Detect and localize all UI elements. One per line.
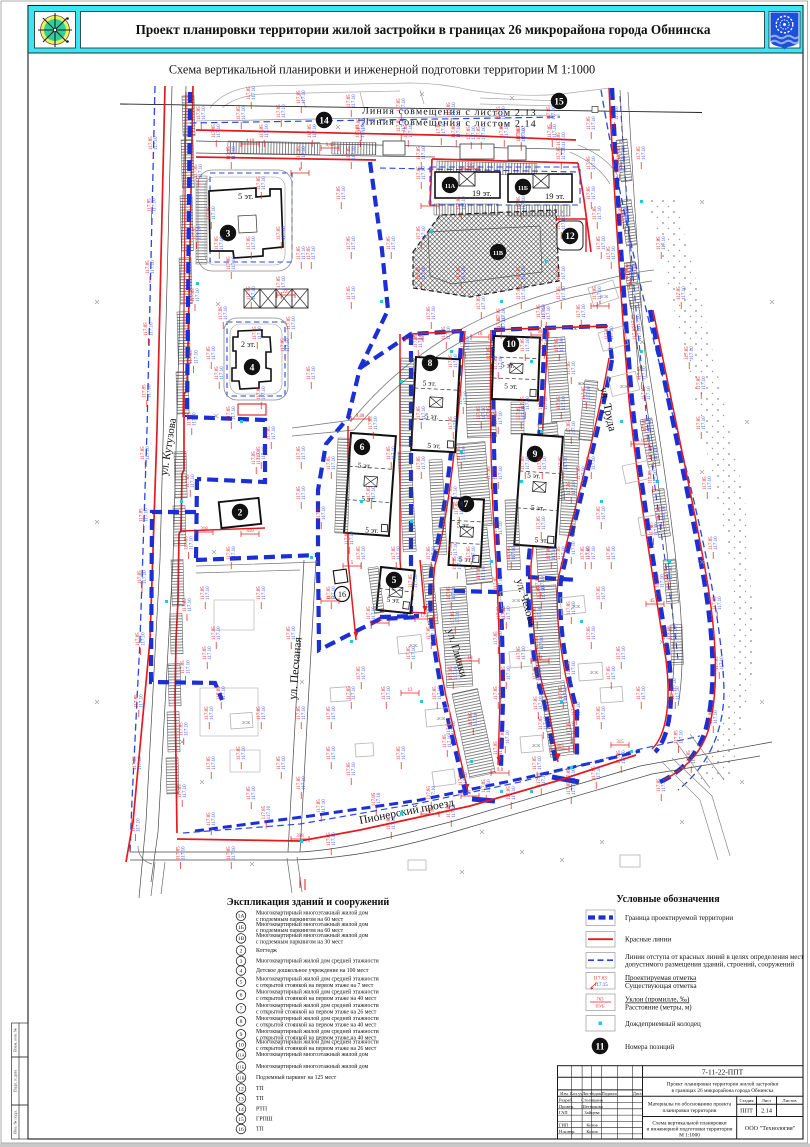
svg-text:117.10: 117.10 — [622, 646, 627, 660]
svg-text:117.10: 117.10 — [137, 818, 142, 832]
svg-text:Многоквартирный жилой дом сре: Многоквартирный жилой дом средней этажно… — [256, 989, 379, 996]
svg-text:117.10: 117.10 — [654, 470, 659, 484]
svg-text:117.10: 117.10 — [252, 286, 257, 300]
svg-text:5 эт.: 5 эт. — [427, 441, 441, 451]
svg-text:11А: 11А — [237, 1052, 245, 1057]
svg-text:117.10: 117.10 — [592, 626, 597, 640]
svg-text:117.10: 117.10 — [482, 406, 487, 420]
svg-text:117.10: 117.10 — [669, 566, 674, 580]
svg-text:117.10: 117.10 — [212, 812, 217, 826]
svg-text:117.10: 117.10 — [482, 566, 487, 580]
svg-text:117.10: 117.10 — [154, 136, 159, 150]
svg-text:5 эт.: 5 эт. — [422, 378, 436, 388]
svg-text:117.10: 117.10 — [422, 146, 427, 160]
svg-text:117.10: 117.10 — [592, 456, 597, 470]
svg-text:117.10: 117.10 — [592, 546, 597, 560]
svg-text:117.10: 117.10 — [643, 366, 648, 380]
svg-text:117.10: 117.10 — [702, 416, 707, 430]
svg-text:и инженерной подготовки террит: и инженерной подготовки территории — [646, 1126, 732, 1133]
svg-text:117.10: 117.10 — [149, 322, 154, 336]
svg-text:117.10: 117.10 — [615, 106, 620, 120]
svg-text:117.10: 117.10 — [182, 846, 187, 860]
svg-text:117.10: 117.10 — [302, 776, 307, 790]
svg-text:117.10: 117.10 — [507, 666, 512, 680]
svg-text:ООО "Технология": ООО "Технология" — [745, 1125, 796, 1132]
svg-text:117.10: 117.10 — [374, 416, 379, 430]
svg-text:117.63: 117.63 — [593, 977, 607, 982]
svg-text:117.10: 117.10 — [312, 246, 317, 260]
svg-text:11В: 11В — [237, 1075, 244, 1080]
svg-text:117.10: 117.10 — [460, 501, 465, 515]
svg-text:117.10: 117.10 — [392, 236, 397, 250]
svg-text:117.10: 117.10 — [674, 626, 679, 640]
svg-text:Детское дошкольное учреждение: Детское дошкольное учреждение на 100 мес… — [256, 968, 369, 974]
svg-text:117.10: 117.10 — [572, 601, 577, 615]
svg-text:Котов: Котов — [586, 1123, 597, 1128]
svg-text:117.10: 117.10 — [442, 122, 447, 136]
svg-text:117.10: 117.10 — [145, 508, 150, 522]
svg-text:117.10: 117.10 — [562, 266, 567, 280]
svg-text:ТП: ТП — [256, 1096, 265, 1102]
svg-text:5 эт.: 5 эт. — [365, 525, 379, 535]
svg-text:117.10: 117.10 — [220, 366, 225, 380]
svg-text:98: 98 — [538, 330, 543, 335]
svg-text:117.10: 117.10 — [312, 366, 317, 380]
svg-text:117.10: 117.10 — [352, 94, 357, 108]
svg-text:15: 15 — [554, 98, 564, 108]
svg-text:117.10: 117.10 — [542, 586, 547, 600]
svg-text:117.10: 117.10 — [232, 846, 237, 860]
svg-text:117.10: 117.10 — [499, 356, 504, 370]
svg-text:6: 6 — [360, 443, 365, 453]
svg-text:Многоквартирный жилой дом сре: Многоквартирный жилой дом средней этажно… — [256, 1002, 379, 1009]
svg-text:13: 13 — [408, 688, 413, 693]
svg-text:117.10: 117.10 — [242, 746, 247, 760]
svg-text:Многоквартирный жилой дом сре: Многоквартирный жилой дом средней этажно… — [256, 1015, 379, 1022]
svg-text:2: 2 — [240, 948, 243, 954]
svg-text:117.10: 117.10 — [622, 146, 627, 160]
svg-text:117.10: 117.10 — [332, 832, 337, 846]
svg-text:117.10: 117.10 — [252, 786, 257, 800]
svg-text:2СК: 2СК — [512, 598, 521, 603]
svg-text:117.10: 117.10 — [492, 466, 497, 480]
svg-text:117.10: 117.10 — [718, 596, 723, 610]
svg-text:117.10: 117.10 — [199, 164, 204, 178]
svg-text:117.10: 117.10 — [545, 336, 550, 350]
svg-text:ТП: ТП — [256, 1127, 265, 1133]
svg-text:Граница проектируемой территор: Граница проектируемой территории — [625, 914, 733, 922]
svg-text:765: 765 — [597, 997, 605, 1002]
svg-text:117.10: 117.10 — [422, 456, 427, 470]
svg-text:10: 10 — [506, 340, 516, 350]
svg-text:3: 3 — [240, 959, 243, 965]
svg-text:с открытой стоянкой на первом: с открытой стоянкой на первом этаже на 4… — [256, 1021, 377, 1028]
svg-text:45,10: 45,10 — [650, 599, 661, 604]
svg-text:117.10: 117.10 — [708, 476, 713, 490]
svg-text:117.10: 117.10 — [322, 799, 327, 813]
svg-text:ГАП: ГАП — [559, 1110, 568, 1115]
svg-text:117.10: 117.10 — [262, 446, 267, 460]
svg-text:2 эт.: 2 эт. — [241, 340, 255, 349]
svg-text:117.10: 117.10 — [282, 226, 287, 240]
svg-text:117.10: 117.10 — [582, 304, 587, 318]
svg-text:Столицына: Столицына — [581, 1098, 603, 1103]
svg-text:117.10: 117.10 — [267, 805, 272, 819]
svg-text:117.10: 117.10 — [196, 288, 201, 302]
svg-text:Дата: Дата — [633, 1091, 642, 1096]
svg-text:13: 13 — [378, 618, 383, 623]
svg-text:117.10: 117.10 — [572, 781, 577, 795]
svg-text:№док.: №док. — [591, 1091, 603, 1096]
svg-text:117.10: 117.10 — [392, 446, 397, 460]
svg-text:117.10: 117.10 — [547, 306, 552, 320]
svg-text:11А: 11А — [445, 183, 456, 190]
svg-text:117.10: 117.10 — [552, 106, 557, 120]
svg-text:117.10: 117.10 — [140, 694, 145, 708]
svg-text:117.10: 117.10 — [572, 481, 577, 495]
svg-text:117.10: 117.10 — [538, 756, 543, 770]
svg-text:117.10: 117.10 — [387, 686, 392, 700]
svg-text:с открытой стоянкой на первом: с открытой стоянкой на первом этаже на 4… — [256, 995, 377, 1002]
svg-text:117.10: 117.10 — [242, 106, 247, 120]
svg-text:117.10: 117.10 — [352, 146, 357, 160]
svg-text:Шетникова: Шетникова — [581, 1104, 603, 1109]
svg-text:117.10: 117.10 — [499, 686, 504, 700]
svg-text:117.10: 117.10 — [352, 236, 357, 250]
svg-text:117.10: 117.10 — [562, 216, 567, 230]
svg-text:117.10: 117.10 — [191, 474, 196, 488]
svg-text:ППТ: ППТ — [740, 1108, 753, 1115]
svg-text:117.10: 117.10 — [422, 266, 427, 280]
svg-text:117.10: 117.10 — [402, 118, 407, 132]
svg-text:2СК: 2СК — [620, 384, 629, 389]
svg-text:117.10: 117.10 — [153, 198, 158, 212]
svg-text:Коттедж: Коттедж — [256, 948, 278, 954]
svg-text:117.10: 117.10 — [602, 586, 607, 600]
svg-text:117.10: 117.10 — [654, 522, 659, 536]
svg-text:117.10: 117.10 — [322, 506, 327, 520]
svg-text:Стадия: Стадия — [739, 1098, 754, 1103]
svg-text:9: 9 — [533, 450, 538, 460]
svg-text:117.10: 117.10 — [522, 128, 527, 142]
svg-text:Подпись: Подпись — [602, 1091, 618, 1096]
svg-text:ул. Песчаная: ул. Песчаная — [287, 636, 304, 700]
svg-text:117.10: 117.10 — [612, 546, 617, 560]
svg-text:117.10: 117.10 — [352, 686, 357, 700]
svg-text:Многоквартирный многоэтажный ж: Многоквартирный многоэтажный жилой дом — [256, 1051, 369, 1058]
svg-text:117.10: 117.10 — [679, 730, 684, 744]
svg-text:Условные обозначения: Условные обозначения — [616, 894, 720, 905]
svg-text:9,40: 9,40 — [326, 143, 335, 148]
svg-text:117.10: 117.10 — [422, 166, 427, 180]
svg-text:с подземным паркингом на 30 ме: с подземным паркингом на 30 мест — [256, 939, 344, 945]
svg-text:117.10: 117.10 — [412, 646, 417, 660]
svg-text:с открытой стоянкой на первом: с открытой стоянкой на первом этаже на 7… — [256, 982, 374, 989]
svg-text:117.10: 117.10 — [482, 296, 487, 310]
svg-text:7-11-22-ППТ: 7-11-22-ППТ — [702, 1068, 744, 1077]
svg-text:117.10: 117.10 — [562, 396, 567, 410]
svg-text:117.10: 117.10 — [720, 656, 725, 670]
svg-text:117.10: 117.10 — [222, 686, 227, 700]
svg-text:117.10: 117.10 — [542, 516, 547, 530]
svg-text:Подземный паркинг на 125 мест: Подземный паркинг на 125 мест — [256, 1074, 337, 1081]
svg-text:117.10: 117.10 — [262, 706, 267, 720]
svg-text:117.10: 117.10 — [506, 730, 511, 744]
svg-text:117.10: 117.10 — [302, 90, 307, 104]
svg-text:Проект планировки территории ж: Проект планировки территории жилой застр… — [136, 22, 711, 37]
svg-text:117.10: 117.10 — [692, 750, 697, 764]
svg-text:6: 6 — [240, 993, 243, 999]
svg-text:117.10: 117.10 — [224, 306, 229, 320]
svg-text:117.10: 117.10 — [602, 506, 607, 520]
svg-text:117.10: 117.10 — [282, 104, 287, 118]
svg-text:с открытой стоянкой на первом: с открытой стоянкой на первом этаже на 2… — [256, 1045, 377, 1052]
svg-text:2СК: 2СК — [532, 743, 541, 748]
svg-text:117.10: 117.10 — [414, 574, 419, 588]
svg-text:Взам. инв. №: Взам. инв. № — [13, 1028, 18, 1052]
svg-text:117.10: 117.10 — [540, 636, 545, 650]
svg-text:117.10: 117.10 — [512, 786, 517, 800]
svg-text:11Б: 11Б — [238, 1064, 245, 1069]
svg-text:117.10: 117.10 — [438, 686, 443, 700]
svg-text:117.10: 117.10 — [190, 536, 195, 550]
svg-text:2СК: 2СК — [242, 720, 251, 725]
svg-text:117.10: 117.10 — [262, 386, 267, 400]
svg-text:117.10: 117.10 — [690, 346, 695, 360]
svg-text:117.10: 117.10 — [572, 361, 577, 375]
svg-text:11: 11 — [596, 1043, 605, 1053]
svg-text:5 эт.: 5 эт. — [357, 461, 371, 471]
svg-text:117.10: 117.10 — [538, 606, 543, 620]
svg-text:117.10: 117.10 — [454, 486, 459, 500]
svg-text:117.10: 117.10 — [282, 756, 287, 770]
svg-text:117.10: 117.10 — [564, 686, 569, 700]
svg-text:117.10: 117.10 — [313, 124, 318, 138]
svg-text:117.10: 117.10 — [562, 286, 567, 300]
svg-text:5: 5 — [469, 791, 472, 796]
svg-text:Многоквартирный многоэтажный ж: Многоквартирный многоэтажный жилой дом — [256, 1063, 369, 1070]
svg-text:117.10: 117.10 — [502, 106, 507, 120]
svg-text:117.10: 117.10 — [272, 426, 277, 440]
svg-text:Многоквартирный многоэтажный ж: Многоквартирный многоэтажный жилой дом — [256, 910, 369, 917]
svg-text:11В: 11В — [493, 250, 503, 257]
svg-text:Красные линии: Красные линии — [625, 936, 671, 944]
svg-text:36,10: 36,10 — [635, 439, 646, 444]
svg-text:117.10: 117.10 — [188, 598, 193, 612]
svg-text:ГИП: ГИП — [559, 1123, 569, 1128]
svg-text:с открытой стоянкой на первом: с открытой стоянкой на первом этаже на 2… — [256, 1008, 377, 1015]
svg-text:8: 8 — [428, 359, 433, 369]
svg-text:Н.контр.: Н.контр. — [559, 1129, 575, 1134]
svg-text:117.10: 117.10 — [647, 386, 652, 400]
svg-text:117.10: 117.10 — [676, 686, 681, 700]
svg-text:Существующая отметка: Существующая отметка — [625, 982, 697, 990]
svg-text:8: 8 — [240, 1019, 243, 1025]
svg-text:117.10: 117.10 — [232, 546, 237, 560]
svg-text:3: 3 — [226, 230, 231, 240]
svg-text:117.10: 117.10 — [512, 546, 517, 560]
svg-text:Линия совмещения с листом 2.14: Линия совмещения с листом 2.14 — [362, 117, 537, 130]
svg-text:16: 16 — [238, 1127, 244, 1133]
svg-text:117.10: 117.10 — [505, 124, 510, 138]
svg-text:117.10: 117.10 — [198, 226, 203, 240]
svg-text:117.10: 117.10 — [193, 412, 198, 426]
svg-text:117.15: 117.15 — [594, 983, 608, 988]
svg-text:9: 9 — [240, 1032, 243, 1038]
svg-text:в границах 26 микрорайона горо: в границах 26 микрорайона города Обнинск… — [672, 1087, 775, 1094]
svg-text:Экспликация зданий и сооружени: Экспликация зданий и сооружений — [227, 897, 390, 908]
svg-text:978: 978 — [426, 809, 434, 814]
svg-text:117.10: 117.10 — [562, 132, 567, 146]
svg-text:117.10: 117.10 — [464, 391, 469, 405]
svg-text:Зайцева: Зайцева — [584, 1110, 599, 1115]
svg-text:117.10: 117.10 — [372, 606, 377, 620]
svg-text:117.10: 117.10 — [464, 772, 469, 786]
svg-text:117.10: 117.10 — [342, 186, 347, 200]
svg-text:4,10: 4,10 — [246, 139, 255, 144]
svg-text:117.10: 117.10 — [572, 421, 577, 435]
svg-text:318: 318 — [296, 834, 304, 839]
svg-text:117.10: 117.10 — [432, 306, 437, 320]
svg-text:117.10: 117.10 — [252, 236, 257, 250]
svg-text:117.10: 117.10 — [302, 446, 307, 460]
svg-text:117.10: 117.10 — [526, 338, 531, 352]
svg-text:315: 315 — [556, 744, 564, 749]
svg-text:117.10: 117.10 — [362, 546, 367, 560]
svg-text:117.10: 117.10 — [572, 768, 577, 782]
svg-text:117.10: 117.10 — [392, 816, 397, 830]
svg-text:117.10: 117.10 — [543, 456, 548, 470]
svg-text:Многоквартирный многоэтажный ж: Многоквартирный многоэтажный жилой дом — [256, 932, 369, 939]
svg-text:19 эт.: 19 эт. — [472, 188, 491, 198]
svg-text:117.10: 117.10 — [422, 406, 427, 420]
svg-text:117.10: 117.10 — [492, 406, 497, 420]
svg-text:117.10: 117.10 — [432, 786, 437, 800]
svg-text:117.10: 117.10 — [662, 778, 667, 792]
svg-text:117.10: 117.10 — [217, 124, 222, 138]
svg-text:2СК: 2СК — [590, 670, 599, 675]
svg-text:117.10: 117.10 — [539, 696, 544, 710]
svg-text:Многоквартирный жилой дом сре: Многоквартирный жилой дом средней этажно… — [256, 1028, 379, 1035]
svg-text:9,40: 9,40 — [356, 414, 365, 419]
svg-text:1В: 1В — [238, 936, 245, 942]
svg-text:Материалы по обоснованию проек: Материалы по обоснованию проекта — [648, 1101, 732, 1108]
svg-text:117.10: 117.10 — [397, 546, 402, 560]
svg-text:14: 14 — [238, 1107, 244, 1113]
svg-text:Провер.: Провер. — [559, 1104, 574, 1109]
svg-text:172: 172 — [420, 614, 428, 619]
svg-text:117.10: 117.10 — [208, 646, 213, 660]
svg-text:117.10: 117.10 — [612, 666, 617, 680]
svg-text:117.10: 117.10 — [458, 556, 463, 570]
svg-text:эск: эск — [578, 382, 585, 387]
svg-text:225: 225 — [282, 290, 290, 295]
svg-text:117.10: 117.10 — [602, 706, 607, 720]
svg-text:7: 7 — [240, 1006, 243, 1012]
svg-text:117.10: 117.10 — [212, 206, 217, 220]
svg-text:117.10: 117.10 — [185, 722, 190, 736]
svg-text:117.10: 117.10 — [252, 86, 257, 100]
svg-text:117.10: 117.10 — [602, 236, 607, 250]
svg-text:М 1:1000: М 1:1000 — [679, 1133, 700, 1139]
svg-text:Многоквартирный жилой дом сре: Многоквартирный жилой дом средней этажно… — [256, 958, 379, 965]
svg-text:117.10: 117.10 — [210, 706, 215, 720]
svg-text:117.10: 117.10 — [462, 196, 467, 210]
svg-text:13: 13 — [238, 1096, 244, 1102]
svg-text:Проект планировки территории ж: Проект планировки территории жилой застр… — [667, 1080, 779, 1087]
svg-text:117.10: 117.10 — [544, 716, 549, 730]
svg-text:117.10: 117.10 — [522, 196, 527, 210]
svg-text:Изм.: Изм. — [560, 1091, 569, 1096]
svg-text:Проектируемая отметка: Проектируемая отметка — [625, 974, 697, 982]
svg-text:Многоквартирный жилой дом сре: Многоквартирный жилой дом средней этажно… — [256, 1039, 379, 1046]
svg-text:Многоквартирный жилой дом сре: Многоквартирный жилой дом средней этажно… — [256, 976, 379, 983]
svg-text:410: 410 — [326, 596, 334, 601]
svg-text:117.10: 117.10 — [642, 686, 647, 700]
svg-text:117.10: 117.10 — [217, 626, 222, 640]
svg-text:117.10: 117.10 — [507, 606, 512, 620]
svg-text:117.10: 117.10 — [232, 256, 237, 270]
svg-text:117.10: 117.10 — [597, 766, 602, 780]
svg-text:117.10: 117.10 — [572, 661, 577, 675]
svg-text:117.10: 117.10 — [447, 326, 452, 340]
svg-text:117.10: 117.10 — [377, 792, 382, 806]
svg-text:117.10: 117.10 — [592, 156, 597, 170]
svg-text:5 эт.: 5 эт. — [531, 503, 545, 513]
svg-text:117.10: 117.10 — [487, 779, 492, 793]
svg-text:117.10: 117.10 — [630, 266, 635, 280]
svg-text:117.10: 117.10 — [714, 710, 719, 724]
svg-text:117.10: 117.10 — [422, 226, 427, 240]
svg-text:ГРПШ: ГРПШ — [256, 1117, 273, 1123]
svg-text:12: 12 — [238, 1086, 244, 1092]
svg-text:117.10: 117.10 — [662, 506, 667, 520]
svg-text:117.10: 117.10 — [350, 531, 355, 545]
svg-text:117.10: 117.10 — [612, 246, 617, 260]
svg-text:117.10: 117.10 — [456, 611, 461, 625]
svg-text:117.10: 117.10 — [538, 666, 543, 680]
svg-text:14: 14 — [319, 117, 329, 127]
svg-text:117.10: 117.10 — [598, 286, 603, 300]
svg-text:117.10: 117.10 — [402, 746, 407, 760]
svg-text:117.10: 117.10 — [682, 286, 687, 300]
svg-text:117.10: 117.10 — [452, 804, 457, 818]
svg-text:117.10: 117.10 — [146, 446, 151, 460]
svg-text:117.10: 117.10 — [292, 316, 297, 330]
svg-text:117.10: 117.10 — [212, 346, 217, 360]
svg-text:117.10: 117.10 — [542, 772, 547, 786]
svg-text:1А: 1А — [238, 914, 245, 920]
svg-text:2.14: 2.14 — [761, 1108, 772, 1115]
svg-text:117.10: 117.10 — [462, 446, 467, 460]
svg-text:117.10: 117.10 — [562, 146, 567, 160]
svg-text:5 эт.: 5 эт. — [456, 520, 470, 530]
svg-text:Уклон (промилле, ‰): Уклон (промилле, ‰) — [625, 996, 690, 1004]
svg-text:117.10: 117.10 — [472, 546, 477, 560]
svg-text:117.10: 117.10 — [212, 756, 217, 770]
svg-text:117.10: 117.10 — [183, 784, 188, 798]
svg-text:117.10: 117.10 — [202, 106, 207, 120]
svg-text:117.10: 117.10 — [402, 98, 407, 112]
svg-text:Котов: Котов — [586, 1129, 597, 1134]
svg-text:117.10: 117.10 — [702, 376, 707, 390]
svg-text:117.10: 117.10 — [452, 102, 457, 116]
svg-text:117.10: 117.10 — [522, 266, 527, 280]
svg-text:117.10: 117.10 — [232, 146, 237, 160]
svg-text:Номера позиций: Номера позиций — [625, 1043, 675, 1051]
svg-text:117.10: 117.10 — [499, 466, 504, 480]
svg-text:117.10: 117.10 — [454, 354, 459, 368]
